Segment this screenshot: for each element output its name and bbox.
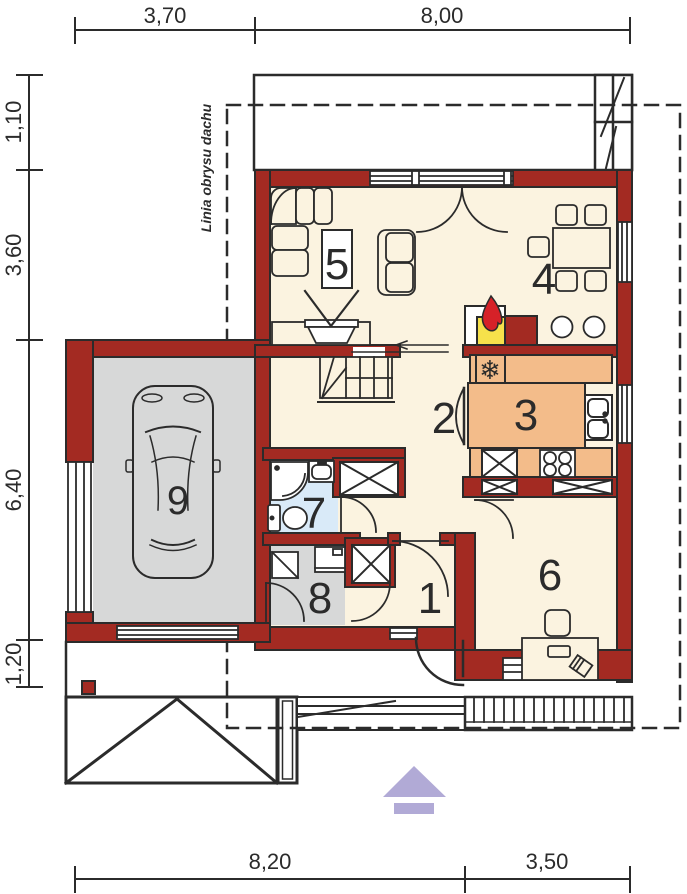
- room-label-8: 8: [308, 574, 332, 623]
- dimensions-bottom: 8,20 3,50: [75, 849, 630, 892]
- terrace: [254, 75, 632, 170]
- dining-chair: [528, 237, 549, 257]
- dining-chair: [556, 205, 577, 225]
- snowflake-icon: ❄: [479, 355, 501, 385]
- driveway-roof: [66, 697, 277, 783]
- dim-left-1: 1,10: [1, 101, 26, 144]
- entrance-door: [390, 628, 417, 639]
- dim-top-1: 3,70: [144, 3, 187, 28]
- tv: [308, 327, 355, 343]
- dining-table: [553, 228, 610, 268]
- kitchen-cabinet-x: [482, 450, 517, 477]
- room-label-6: 6: [538, 551, 562, 600]
- room-label-5: 5: [325, 240, 349, 289]
- dim-bottom-2: 3,50: [526, 849, 569, 874]
- kitchen-sink: [585, 395, 612, 440]
- cabinet: [272, 552, 298, 578]
- entrance-steps: [297, 697, 465, 730]
- stool: [552, 317, 573, 338]
- wardrobe-x: [553, 480, 612, 494]
- wardrobe-x: [352, 545, 390, 583]
- wardrobe-x: [340, 462, 398, 495]
- exterior-stairs-icon: [595, 75, 632, 170]
- room-label-1: 1: [418, 574, 442, 623]
- dim-top-2: 8,00: [421, 3, 464, 28]
- garage-door: [117, 626, 238, 639]
- floor-plan-page: ❄: [0, 0, 687, 894]
- porch-column: [278, 697, 297, 783]
- small-sofa: [378, 230, 415, 295]
- hob: [540, 450, 575, 477]
- dim-left-2: 3,60: [1, 234, 26, 277]
- dining-window: [618, 222, 632, 282]
- room-label-7: 7: [302, 489, 326, 538]
- dimensions-left: 1,10 3,60 6,40 1,20: [1, 75, 42, 687]
- washing-machine: [315, 547, 345, 572]
- floor-plan-drawing: ❄: [0, 0, 687, 894]
- washbasin: [309, 460, 334, 482]
- living-glazing: [370, 171, 513, 185]
- room-label-3: 3: [514, 391, 538, 440]
- roof-outline-label: Linia obrysu dachu: [198, 103, 214, 232]
- north-arrow-icon: [383, 766, 446, 814]
- desk-item: [548, 646, 570, 657]
- kitchen-window: [618, 385, 632, 443]
- terrace-decking: [465, 697, 632, 730]
- desk-chair: [545, 610, 570, 636]
- dim-bottom-1: 8,20: [249, 849, 292, 874]
- wardrobe-x: [482, 480, 517, 494]
- dining-chair: [556, 271, 577, 291]
- dining-chair: [585, 205, 606, 225]
- room-label-2: 2: [432, 394, 456, 443]
- garage-window: [68, 462, 91, 612]
- dim-left-3: 6,40: [1, 469, 26, 512]
- room-label-4: 4: [532, 255, 556, 304]
- room-label-9: 9: [167, 479, 189, 523]
- dining-chair: [585, 271, 606, 291]
- stool: [584, 317, 605, 338]
- dimensions-top: 3,70 8,00: [75, 3, 630, 43]
- dim-left-4: 1,20: [1, 643, 26, 686]
